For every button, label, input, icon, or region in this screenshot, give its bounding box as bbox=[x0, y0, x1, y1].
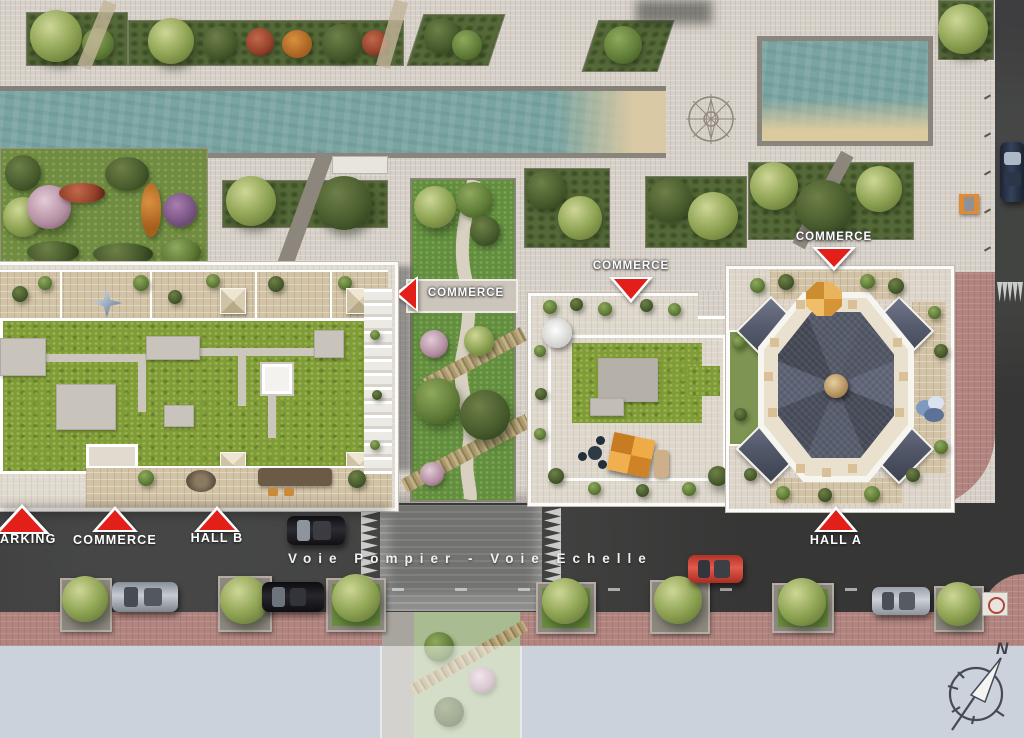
tree bbox=[604, 26, 642, 64]
shrub bbox=[12, 286, 28, 302]
terrace-divider bbox=[60, 270, 62, 318]
shrub bbox=[928, 306, 941, 319]
roof-lawn bbox=[688, 366, 720, 396]
castellation bbox=[848, 464, 857, 473]
roof-structure bbox=[0, 338, 46, 376]
flowering-tree bbox=[420, 462, 444, 486]
roof-path bbox=[196, 348, 318, 356]
shrub bbox=[370, 440, 380, 450]
tree bbox=[456, 182, 492, 218]
tree bbox=[796, 180, 852, 234]
tree bbox=[464, 326, 494, 356]
central-garden-strip bbox=[410, 178, 516, 502]
shrub bbox=[734, 408, 747, 421]
orange-parasol bbox=[806, 282, 842, 316]
shrub bbox=[370, 330, 380, 340]
hedge bbox=[27, 241, 79, 263]
water-pool bbox=[757, 36, 933, 146]
shrub bbox=[372, 390, 382, 400]
roof-structure bbox=[314, 330, 344, 358]
castellation bbox=[770, 338, 779, 347]
flowering-tree bbox=[420, 330, 448, 358]
pyramid-skylight bbox=[220, 288, 246, 314]
shrub bbox=[105, 157, 149, 191]
shrub bbox=[750, 278, 765, 293]
roof-structure bbox=[164, 405, 194, 427]
commerce-bottom-marker bbox=[92, 506, 138, 532]
tree bbox=[750, 162, 798, 210]
flower-patch bbox=[246, 28, 274, 56]
shrub bbox=[535, 388, 547, 400]
road-mark bbox=[608, 588, 620, 591]
shrub bbox=[598, 302, 612, 316]
building-b-lower-terrace bbox=[86, 466, 392, 508]
utility-marker bbox=[982, 592, 1008, 616]
tree bbox=[148, 18, 194, 64]
shrub bbox=[534, 428, 546, 440]
flower-patch bbox=[282, 30, 312, 58]
terrace-table bbox=[588, 446, 602, 460]
car-black bbox=[287, 516, 345, 545]
roof-structure bbox=[56, 384, 116, 430]
commerce-garden-label: COMMERCE bbox=[420, 287, 512, 299]
shrub bbox=[888, 278, 904, 294]
compass-icon: N bbox=[938, 636, 1018, 734]
terrace-divider bbox=[330, 270, 332, 318]
shrub bbox=[138, 470, 154, 486]
car-navy bbox=[1000, 142, 1024, 202]
flower-garden bbox=[0, 148, 208, 268]
tree bbox=[938, 4, 988, 54]
shrub bbox=[168, 290, 182, 304]
shrub bbox=[682, 482, 696, 496]
roof-path bbox=[138, 354, 146, 412]
blue-flower-sculpture bbox=[914, 394, 950, 424]
shrub bbox=[864, 486, 880, 502]
tree bbox=[414, 186, 456, 228]
white-parasol bbox=[542, 318, 572, 348]
road-mark bbox=[518, 588, 530, 591]
roof-path bbox=[268, 392, 276, 438]
shrub bbox=[220, 576, 268, 624]
pool-beach bbox=[762, 99, 928, 141]
crossing-shadow bbox=[390, 495, 535, 593]
shrub bbox=[542, 578, 588, 624]
road-mark bbox=[845, 588, 857, 591]
flower-patch bbox=[141, 183, 161, 237]
commerce-center-label: COMMERCE bbox=[587, 260, 675, 272]
castellation bbox=[764, 372, 773, 381]
shrub bbox=[38, 276, 52, 290]
tree bbox=[688, 192, 738, 240]
road-mark bbox=[720, 588, 732, 591]
castellation bbox=[899, 372, 908, 381]
hall-b-marker bbox=[194, 506, 240, 532]
flower-patch bbox=[59, 183, 105, 203]
terrace-divider bbox=[255, 270, 257, 318]
castellation bbox=[796, 300, 805, 309]
shrub bbox=[322, 24, 362, 62]
shrub bbox=[268, 276, 284, 292]
tree bbox=[226, 176, 276, 226]
compass-north-label: N bbox=[996, 639, 1009, 658]
road-name: Voie Pompier - Voie Echelle bbox=[288, 551, 653, 566]
hall-a-label: HALL A bbox=[806, 533, 866, 547]
car-black-parked bbox=[262, 582, 324, 612]
shrub bbox=[778, 578, 826, 626]
tree bbox=[470, 216, 500, 246]
skylight bbox=[260, 362, 294, 396]
roof-structure bbox=[146, 336, 200, 360]
shrub bbox=[548, 468, 564, 484]
tree bbox=[558, 196, 602, 240]
castellation bbox=[848, 300, 857, 309]
castellation bbox=[893, 338, 902, 347]
shrub bbox=[62, 576, 108, 622]
shrub bbox=[934, 344, 948, 358]
shrub bbox=[776, 486, 790, 500]
canal-beach bbox=[556, 91, 666, 153]
shrub bbox=[588, 482, 601, 495]
commerce-center-marker bbox=[609, 277, 653, 303]
tree bbox=[856, 166, 902, 212]
cushion bbox=[284, 488, 294, 496]
shrub bbox=[818, 488, 832, 502]
hall-b-label: HALL B bbox=[188, 531, 246, 545]
car-silver bbox=[112, 582, 178, 612]
shrub bbox=[452, 30, 482, 60]
castellation bbox=[895, 408, 904, 417]
castellation bbox=[822, 468, 831, 477]
shrub bbox=[668, 303, 681, 316]
roof-structure bbox=[590, 398, 624, 416]
tree-shadow bbox=[636, 0, 712, 24]
tree bbox=[526, 170, 566, 210]
castellation bbox=[768, 408, 777, 417]
parking-marker bbox=[0, 504, 50, 534]
castellation bbox=[796, 464, 805, 473]
car-red bbox=[688, 555, 743, 583]
shrub bbox=[133, 275, 149, 291]
roof-path bbox=[44, 354, 144, 362]
roof-path bbox=[238, 356, 246, 406]
terrace-table bbox=[186, 470, 216, 492]
commerce-right-marker bbox=[812, 247, 856, 271]
parking-label: PARKING bbox=[0, 532, 64, 546]
canopy bbox=[332, 156, 388, 174]
shrub bbox=[778, 274, 794, 290]
shrub bbox=[654, 576, 702, 624]
shrub bbox=[906, 468, 920, 482]
shrub bbox=[203, 26, 237, 60]
commerce-bottom-label: COMMERCE bbox=[63, 533, 167, 547]
shrub bbox=[570, 298, 583, 311]
car-silver-parked bbox=[872, 587, 930, 615]
shrub bbox=[534, 345, 546, 357]
cushion bbox=[268, 488, 278, 496]
sun-lounger bbox=[654, 450, 669, 478]
terrace-divider bbox=[150, 270, 152, 318]
tree bbox=[648, 178, 692, 222]
shrub bbox=[543, 300, 557, 314]
shrub bbox=[936, 582, 980, 626]
pavement-compass-medallion bbox=[682, 90, 740, 148]
chair bbox=[596, 436, 605, 445]
gold-finial bbox=[824, 374, 848, 398]
tree bbox=[460, 390, 510, 440]
flower-patch bbox=[163, 193, 197, 227]
hall-a-marker bbox=[814, 506, 858, 532]
commerce-right-label: COMMERCE bbox=[790, 231, 878, 243]
postbox bbox=[959, 194, 979, 214]
shrub bbox=[5, 155, 41, 191]
road-mark bbox=[392, 588, 404, 591]
shrub bbox=[744, 468, 757, 481]
shrub bbox=[636, 484, 649, 497]
fade-veil bbox=[380, 646, 522, 738]
shrub bbox=[332, 574, 380, 622]
shrub bbox=[206, 274, 220, 288]
road-vertical bbox=[995, 0, 1024, 510]
tree bbox=[316, 176, 372, 230]
shrub bbox=[934, 440, 948, 454]
tree bbox=[30, 10, 82, 62]
terrace-sofa bbox=[258, 468, 332, 486]
site-plan: COMMERCE bbox=[0, 0, 1024, 738]
roof-structure bbox=[598, 358, 658, 402]
chair bbox=[598, 460, 607, 469]
road-mark bbox=[455, 588, 467, 591]
shrub bbox=[708, 466, 728, 486]
shrub bbox=[732, 336, 745, 349]
shrub bbox=[860, 274, 875, 289]
chair bbox=[578, 452, 587, 461]
tree bbox=[414, 378, 460, 424]
